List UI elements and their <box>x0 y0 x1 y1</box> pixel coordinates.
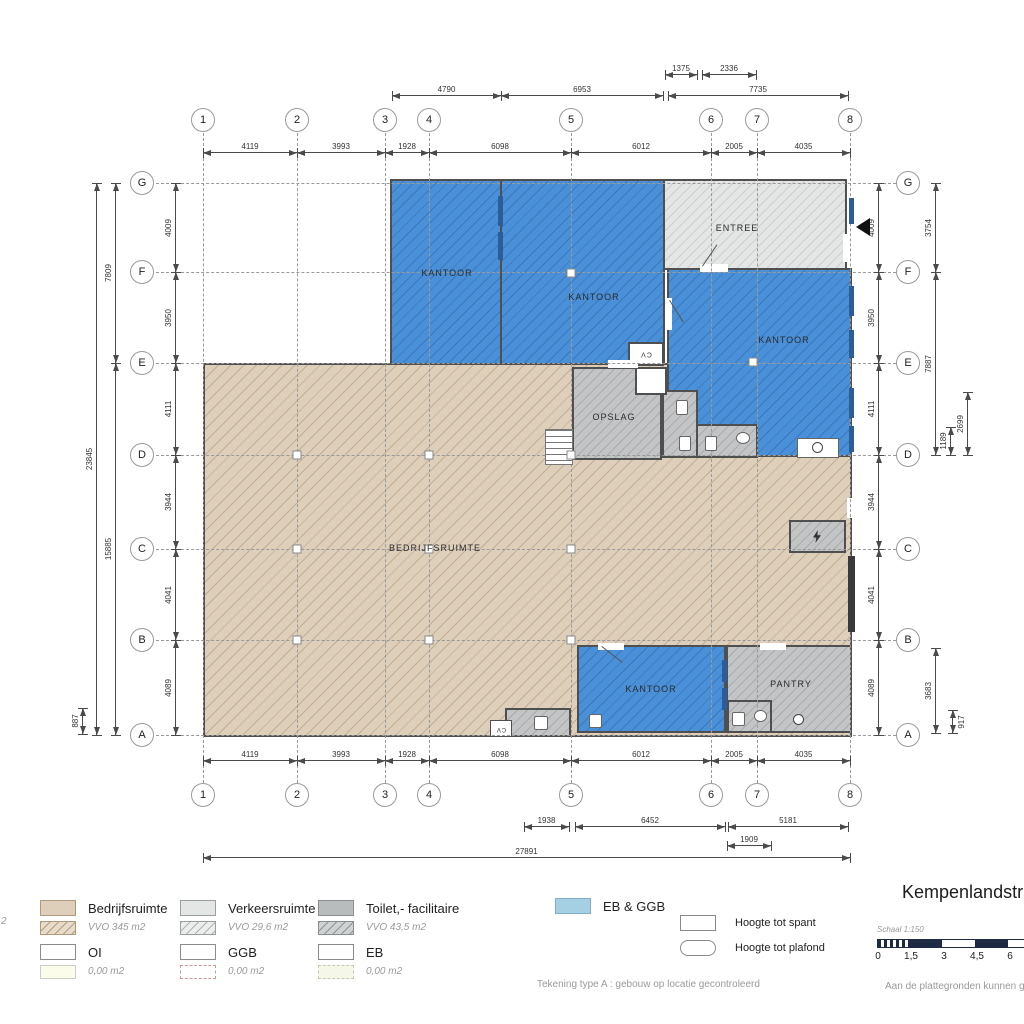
dimension: 1909 <box>727 845 771 846</box>
legend-swatch-bedrijfsruimte <box>40 900 76 916</box>
dimension: 3683 <box>935 648 936 733</box>
gridline-col-8 <box>850 133 851 783</box>
dim-tick <box>171 272 181 273</box>
dimension: 4111 <box>878 363 879 455</box>
dim-tick <box>429 148 430 158</box>
scalebar-segment <box>878 940 909 947</box>
lamp-icon <box>793 714 804 725</box>
dimension-label: 2005 <box>725 142 743 151</box>
dimension-label: 6452 <box>641 816 659 825</box>
dimension-label: 1938 <box>538 816 556 825</box>
grid-bubble-bottom-3: 3 <box>373 783 397 807</box>
grid-bubble-top-2: 2 <box>285 108 309 132</box>
dimension-label: 4009 <box>164 219 173 237</box>
dimension: 3993 <box>297 760 385 761</box>
dim-tick <box>171 640 181 641</box>
dimension-label: 4119 <box>241 142 258 151</box>
dimension: 4790 <box>392 95 501 96</box>
cv-label: CV <box>496 726 506 732</box>
dimension: 1928 <box>385 760 429 761</box>
dim-tick <box>711 148 712 158</box>
dimension: 4035 <box>757 760 850 761</box>
toilet-fixture <box>705 436 717 451</box>
dimension-label: 4790 <box>438 85 456 94</box>
dim-tick <box>874 735 884 736</box>
gridline-row-G <box>156 183 896 184</box>
room-label-kantoor-e: KANTOOR <box>758 335 809 345</box>
dimension-label: 23845 <box>85 448 94 470</box>
grid-bubble-right-G: G <box>896 171 920 195</box>
scalebar-tick: 6 <box>1007 951 1013 962</box>
dim-tick <box>848 91 849 101</box>
legend-swatch-sub-eb <box>318 965 354 979</box>
dim-tick <box>171 549 181 550</box>
door-opening <box>608 360 638 368</box>
legend-swatch-ebggb <box>555 898 591 914</box>
dimension-label: 5181 <box>779 816 797 825</box>
legend-sublabel-oi: 0,00 m2 <box>88 966 124 977</box>
dimension: 5181 <box>728 826 848 827</box>
dim-tick <box>92 183 102 184</box>
dim-tick <box>948 733 958 734</box>
dimension-label: 1189 <box>939 432 948 449</box>
entrance-arrow-icon <box>856 218 870 236</box>
door-opening <box>700 264 728 272</box>
scalebar-tick: 0 <box>875 951 881 962</box>
legend-sublabel-bedrijfsruimte: VVO 345 m2 <box>88 922 145 933</box>
grid-bubble-right-D: D <box>896 443 920 467</box>
dim-tick <box>931 733 941 734</box>
dimension: 4009 <box>878 183 879 272</box>
gridline-col-1 <box>203 133 204 783</box>
column-marker <box>425 451 434 460</box>
dimension: 1938 <box>524 826 569 827</box>
dim-tick <box>171 363 181 364</box>
lamp-icon <box>812 442 823 453</box>
dimension-label: 1375 <box>672 64 690 73</box>
floorplan-sheet: CV CV Kempenlandstra Schaal 1:150 Tekeni… <box>0 0 1024 1024</box>
drawing-note: Tekening type A : gebouw op locatie geco… <box>537 979 760 990</box>
dimension-label: 887 <box>71 714 80 727</box>
scale-label: Schaal 1:150 <box>877 925 924 934</box>
gridline-row-B <box>156 640 896 641</box>
dimension: 7735 <box>668 95 848 96</box>
dimension-label: 3754 <box>924 219 933 237</box>
grid-bubble-left-E: E <box>130 351 154 375</box>
dim-tick <box>702 70 703 80</box>
dim-tick <box>203 853 204 863</box>
dimension: 6012 <box>571 152 711 153</box>
dimension: 6098 <box>429 760 571 761</box>
dim-tick <box>948 710 958 711</box>
dim-tick <box>931 272 941 273</box>
grid-bubble-bottom-6: 6 <box>699 783 723 807</box>
dim-tick <box>501 91 502 101</box>
door-opening <box>760 643 786 650</box>
room-label-entree: ENTREE <box>716 223 759 233</box>
gridline-row-A <box>156 735 896 736</box>
grid-bubble-left-B: B <box>130 628 154 652</box>
dimension: 2699 <box>967 392 968 455</box>
dim-tick <box>874 183 884 184</box>
dimension: 3944 <box>878 455 879 549</box>
dim-tick <box>931 648 941 649</box>
dim-tick <box>78 734 88 735</box>
toilet-fixture <box>676 400 688 415</box>
scalebar-tick: 3 <box>941 951 947 962</box>
dimension-label: 4035 <box>795 142 813 151</box>
column-marker <box>567 545 576 554</box>
dim-tick <box>725 822 726 832</box>
dimension: 1189 <box>950 427 951 455</box>
column-marker <box>293 451 302 460</box>
dimension-label: 6012 <box>632 750 650 759</box>
grid-bubble-top-3: 3 <box>373 108 397 132</box>
dim-tick <box>665 70 666 80</box>
scalebar-tick: 4,5 <box>970 951 984 962</box>
dim-tick <box>946 455 956 456</box>
dimension: 2336 <box>702 74 756 75</box>
gridline-row-D <box>156 455 896 456</box>
dimension-label: 7735 <box>749 85 767 94</box>
dimension: 4119 <box>203 760 297 761</box>
grid-bubble-bottom-2: 2 <box>285 783 309 807</box>
legend-sublabel-ggb: 0,00 m2 <box>228 966 264 977</box>
grid-bubble-left-F: F <box>130 260 154 284</box>
dim-tick <box>756 70 757 80</box>
dim-tick <box>757 756 758 766</box>
legend-swatch-spant <box>680 915 716 931</box>
dim-tick <box>111 183 121 184</box>
dim-tick <box>757 148 758 158</box>
legend-label-plafond: Hoogte tot plafond <box>735 942 825 954</box>
window <box>498 232 503 260</box>
column-marker <box>293 545 302 554</box>
dimension: 4041 <box>175 549 176 640</box>
dimension: 7887 <box>935 272 936 455</box>
grid-bubble-right-B: B <box>896 628 920 652</box>
legend-label-bedrijfsruimte: Bedrijfsruimte <box>88 901 167 916</box>
legend-swatch-sub-verkeersruimte <box>180 921 216 935</box>
legend-swatch-sub-ggb <box>180 965 216 979</box>
dim-tick <box>946 427 956 428</box>
dim-tick <box>392 91 393 101</box>
dimension-label: 4089 <box>164 679 173 697</box>
dimension-label: 3944 <box>867 493 876 511</box>
dim-tick <box>297 148 298 158</box>
room-label-opslag: OPSLAG <box>592 412 635 422</box>
dimension: 3754 <box>935 183 936 272</box>
grid-bubble-right-C: C <box>896 537 920 561</box>
legend-sublabel-toilet: VVO 43,5 m2 <box>366 922 426 933</box>
dimension: 917 <box>952 710 953 733</box>
grid-bubble-top-1: 1 <box>191 108 215 132</box>
window <box>849 198 854 224</box>
stairs <box>545 429 573 465</box>
dim-tick <box>874 455 884 456</box>
dimension-label: 3993 <box>332 750 350 759</box>
grid-bubble-top-7: 7 <box>745 108 769 132</box>
column-marker <box>567 636 576 645</box>
column-marker <box>293 636 302 645</box>
room-void <box>635 367 667 395</box>
dimension-label: 3950 <box>867 309 876 327</box>
washbasin-fixture <box>754 710 767 722</box>
overhead-door <box>848 556 855 632</box>
dim-tick <box>171 735 181 736</box>
legend-swatch-verkeersruimte <box>180 900 216 916</box>
scalebar-tick: 1,5 <box>904 951 918 962</box>
dimension-label: 4111 <box>164 401 173 418</box>
grid-bubble-top-4: 4 <box>417 108 441 132</box>
rights-note: Aan de plattegronden kunnen gee <box>885 981 1024 992</box>
dimension: 15885 <box>115 363 116 735</box>
legend-sublabel-eb: 0,00 m2 <box>366 966 402 977</box>
dim-tick <box>874 363 884 364</box>
dim-tick <box>203 148 204 158</box>
dimension: 3950 <box>878 272 879 363</box>
gridline-col-3 <box>385 133 386 783</box>
grid-bubble-top-5: 5 <box>559 108 583 132</box>
dimension: 3944 <box>175 455 176 549</box>
grid-bubble-bottom-1: 1 <box>191 783 215 807</box>
dimension-label: 7809 <box>104 264 113 282</box>
dim-tick <box>171 183 181 184</box>
dim-tick <box>850 756 851 766</box>
dim-tick <box>171 455 181 456</box>
dimension-label: 4089 <box>867 679 876 697</box>
gridline-row-C <box>156 549 896 550</box>
dim-tick <box>874 549 884 550</box>
legend-sublabel-verkeersruimte: VVO 29,6 m2 <box>228 922 288 933</box>
window <box>722 688 727 710</box>
dimension-label: 6098 <box>491 142 509 151</box>
dim-tick <box>931 183 941 184</box>
window <box>849 330 854 358</box>
dim-tick <box>92 735 102 736</box>
dimension-label: 4035 <box>795 750 813 759</box>
dimension-label: 1909 <box>740 835 758 844</box>
dimension: 7809 <box>115 183 116 363</box>
dimension-label: 3950 <box>164 309 173 327</box>
dim-tick <box>963 455 973 456</box>
legend-swatch-sub-bedrijfsruimte <box>40 921 76 935</box>
dimension-label: 917 <box>957 715 966 728</box>
dimension-label: 6953 <box>573 85 591 94</box>
grid-bubble-bottom-8: 8 <box>838 783 862 807</box>
legend-label-toilet: Toilet,- facilitaire <box>366 901 459 916</box>
legend-label-ebggb: EB & GGB <box>603 899 665 914</box>
toilet-fixture <box>534 716 548 730</box>
grid-bubble-top-6: 6 <box>699 108 723 132</box>
dimension: 1928 <box>385 152 429 153</box>
dimension: 4041 <box>878 549 879 640</box>
grid-bubble-right-F: F <box>896 260 920 284</box>
dim-tick <box>571 756 572 766</box>
scalebar-segment <box>909 940 942 947</box>
grid-bubble-right-A: A <box>896 723 920 747</box>
scalebar-segment <box>1008 940 1024 947</box>
dimension-label: 3993 <box>332 142 350 151</box>
dimension-label: 2005 <box>725 750 743 759</box>
scalebar-segment <box>975 940 1008 947</box>
dim-tick <box>728 822 729 832</box>
toilet-fixture <box>589 714 602 728</box>
dim-tick <box>874 272 884 273</box>
scale-bar <box>877 939 1024 948</box>
dimension: 1375 <box>665 74 697 75</box>
dim-tick <box>850 853 851 863</box>
grid-bubble-bottom-4: 4 <box>417 783 441 807</box>
dimension-label: 4041 <box>164 586 173 604</box>
dimension-label: 6012 <box>632 142 650 151</box>
grid-bubble-top-8: 8 <box>838 108 862 132</box>
column-marker <box>567 451 576 460</box>
washbasin-fixture <box>736 432 750 444</box>
dimension-label: 6098 <box>491 750 509 759</box>
dimension-label: 1928 <box>398 750 416 759</box>
legend-label-eb: EB <box>366 945 383 960</box>
legend-label-spant: Hoogte tot spant <box>735 917 816 929</box>
dimension: 3993 <box>297 152 385 153</box>
legend-swatch-oi <box>40 944 76 960</box>
legend-label-verkeersruimte: Verkeersruimte <box>228 901 315 916</box>
dimension-label: 7887 <box>924 355 933 373</box>
dim-tick <box>385 756 386 766</box>
legend-label-oi: OI <box>88 945 102 960</box>
dim-tick <box>203 756 204 766</box>
grid-bubble-bottom-7: 7 <box>745 783 769 807</box>
dimension-label: 3683 <box>924 682 933 700</box>
sheet-title: Kempenlandstra <box>902 882 1024 903</box>
window <box>498 196 503 226</box>
dim-tick <box>771 841 772 851</box>
legend-swatch-toilet <box>318 900 354 916</box>
dim-tick <box>697 70 698 80</box>
dim-tick <box>711 756 712 766</box>
dimension: 4009 <box>175 183 176 272</box>
grid-bubble-left-G: G <box>130 171 154 195</box>
legend-swatch-eb <box>318 944 354 960</box>
dimension: 2005 <box>711 152 757 153</box>
cropped-legend-fragment: 2 <box>1 916 7 927</box>
toilet-fixture <box>679 436 691 451</box>
dim-tick <box>663 91 664 101</box>
column-marker <box>567 269 576 278</box>
dim-tick <box>575 822 576 832</box>
dimension: 4035 <box>757 152 850 153</box>
dim-tick <box>727 841 728 851</box>
dim-tick <box>848 822 849 832</box>
dimension-label: 4111 <box>867 401 876 418</box>
dimension-label: 1928 <box>398 142 416 151</box>
room-label-kantoor-n: KANTOOR <box>568 292 619 302</box>
dimension: 27891 <box>203 857 850 858</box>
dimension: 23845 <box>96 183 97 735</box>
dim-tick <box>874 640 884 641</box>
dim-tick <box>569 822 570 832</box>
dim-tick <box>963 392 973 393</box>
gridline-row-E <box>156 363 896 364</box>
toilet-fixture <box>732 712 745 726</box>
dimension: 6098 <box>429 152 571 153</box>
window <box>849 426 854 452</box>
dimension-label: 3944 <box>164 493 173 511</box>
grid-bubble-left-D: D <box>130 443 154 467</box>
cv-label: CV <box>640 351 652 358</box>
dimension: 887 <box>82 708 83 734</box>
dimension-label: 2336 <box>720 64 738 73</box>
dimension-label: 4119 <box>241 750 258 759</box>
legend-swatch-sub-oi <box>40 965 76 979</box>
gridline-row-F <box>156 272 896 273</box>
entrance-opening <box>843 234 853 262</box>
dimension: 4119 <box>203 152 297 153</box>
dim-tick <box>429 756 430 766</box>
dimension: 4089 <box>175 640 176 735</box>
dimension: 6953 <box>501 95 663 96</box>
dimension: 4111 <box>175 363 176 455</box>
dimension-label: 15885 <box>104 538 113 560</box>
dim-tick <box>668 91 669 101</box>
dimension: 6452 <box>575 826 725 827</box>
room-label-kantoor-s: KANTOOR <box>625 684 676 694</box>
column-marker <box>749 358 758 367</box>
dimension: 3950 <box>175 272 176 363</box>
dimension: 2005 <box>711 760 757 761</box>
grid-bubble-bottom-5: 5 <box>559 783 583 807</box>
gridline-col-6 <box>711 133 712 783</box>
room-label-pantry: PANTRY <box>770 679 812 689</box>
dimension: 6012 <box>571 760 711 761</box>
legend-swatch-ggb <box>180 944 216 960</box>
dimension: 4089 <box>878 640 879 735</box>
dim-tick <box>297 756 298 766</box>
legend-swatch-plafond <box>680 940 716 956</box>
grid-bubble-left-A: A <box>130 723 154 747</box>
column-marker <box>425 636 434 645</box>
dimension-label: 27891 <box>515 847 537 856</box>
room-label-bedrijfsruimte: BEDRIJFSRUIMTE <box>389 543 481 553</box>
grid-bubble-right-E: E <box>896 351 920 375</box>
dim-tick <box>111 363 121 364</box>
dimension-label: 2699 <box>956 415 965 433</box>
dim-tick <box>78 708 88 709</box>
scalebar-segment <box>942 940 975 947</box>
window <box>849 286 854 316</box>
room-label-kantoor-nw: KANTOOR <box>421 268 472 278</box>
dim-tick <box>931 455 941 456</box>
grid-bubble-left-C: C <box>130 537 154 561</box>
dim-tick <box>850 148 851 158</box>
window <box>722 660 727 682</box>
dim-tick <box>524 822 525 832</box>
dimension-label: 4041 <box>867 586 876 604</box>
legend-swatch-sub-toilet <box>318 921 354 935</box>
dim-tick <box>571 148 572 158</box>
door-opening <box>847 498 855 518</box>
dim-tick <box>385 148 386 158</box>
dim-tick <box>111 735 121 736</box>
legend-label-ggb: GGB <box>228 945 257 960</box>
window <box>849 388 854 418</box>
